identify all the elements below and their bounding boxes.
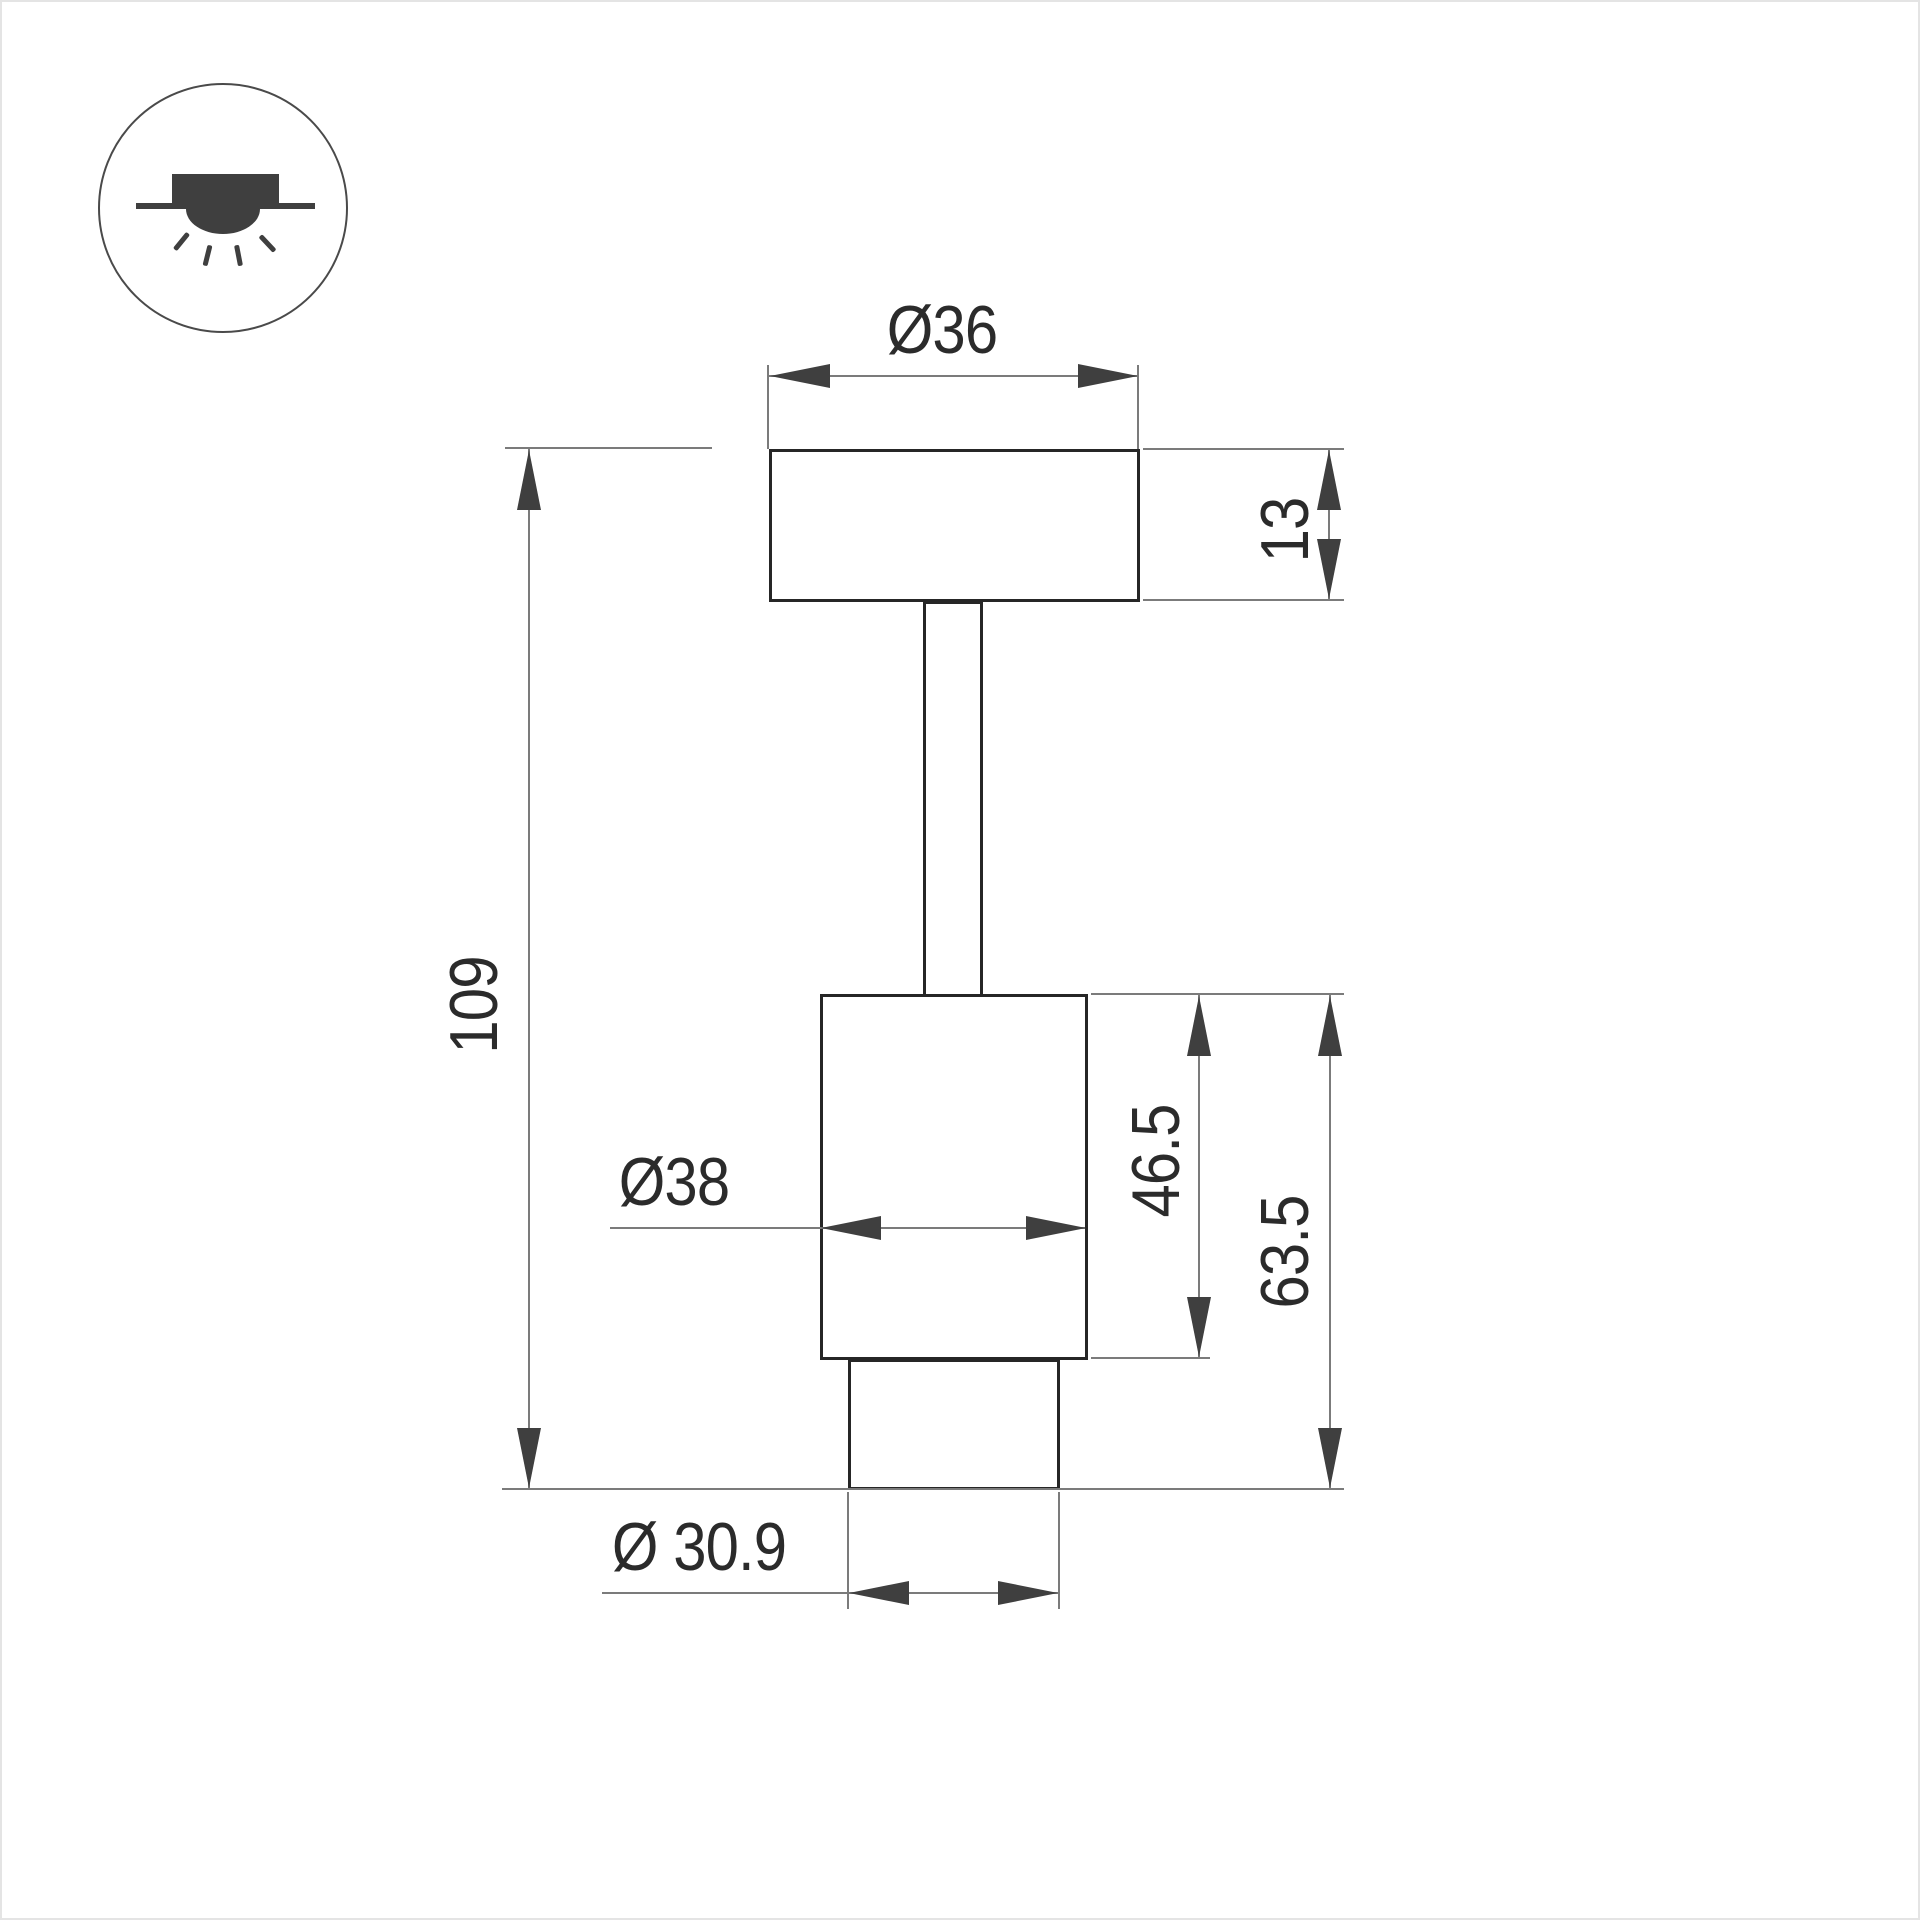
ext-line-canopy-left bbox=[767, 365, 769, 449]
arrowhead-right-icon bbox=[1078, 364, 1138, 388]
dim-label-body-diameter: Ø38 bbox=[619, 1143, 729, 1221]
ext-line-body-top bbox=[1091, 993, 1344, 995]
baseline-extension bbox=[502, 1488, 1344, 1490]
mount-type-badge bbox=[98, 83, 348, 333]
canopy-outline bbox=[769, 449, 1140, 602]
dim-label-overall-height: 109 bbox=[435, 956, 513, 1053]
ext-line-body-bottom bbox=[1091, 1357, 1210, 1359]
arrowhead-left-icon bbox=[770, 364, 830, 388]
ext-line-13-top bbox=[1143, 448, 1344, 450]
arrowhead-up-icon bbox=[1187, 996, 1211, 1056]
arrowhead-left-icon bbox=[821, 1216, 881, 1240]
dim-label-body-height: 46.5 bbox=[1117, 1105, 1195, 1218]
arrowhead-down-icon bbox=[1187, 1297, 1211, 1357]
arrowhead-right-icon bbox=[998, 1581, 1058, 1605]
downlight-housing-shape bbox=[172, 174, 279, 205]
arrowhead-up-icon bbox=[1318, 996, 1342, 1056]
dim-label-canopy-thickness: 13 bbox=[1246, 498, 1324, 563]
light-ray bbox=[259, 234, 277, 253]
drawing-page: Ø36 13 109 Ø38 46.5 63.5 Ø 30.9 bbox=[0, 0, 1920, 1920]
arrowhead-down-icon bbox=[1318, 1428, 1342, 1488]
light-ray bbox=[203, 245, 213, 267]
dim-label-canopy-diameter: Ø36 bbox=[887, 291, 997, 369]
arrowhead-right-icon bbox=[1026, 1216, 1086, 1240]
body-outline bbox=[820, 994, 1088, 1360]
dim-label-trim-diameter: Ø 30.9 bbox=[612, 1508, 786, 1586]
light-ray bbox=[173, 232, 190, 251]
ext-line-13-bottom bbox=[1143, 599, 1344, 601]
light-ray bbox=[234, 245, 243, 267]
ext-line-109-top bbox=[505, 447, 712, 449]
dim-label-body-plus-trim: 63.5 bbox=[1246, 1196, 1324, 1309]
light-dome bbox=[186, 209, 260, 234]
dim-line-overall-height bbox=[528, 449, 530, 1489]
trim-outline bbox=[848, 1359, 1060, 1490]
arrowhead-down-icon bbox=[517, 1428, 541, 1488]
stem-outline bbox=[923, 601, 983, 997]
arrowhead-left-icon bbox=[849, 1581, 909, 1605]
dim-line-trim-diameter bbox=[602, 1592, 1059, 1594]
arrowhead-up-icon bbox=[517, 450, 541, 510]
dim-line-body-plus-trim bbox=[1329, 995, 1331, 1489]
